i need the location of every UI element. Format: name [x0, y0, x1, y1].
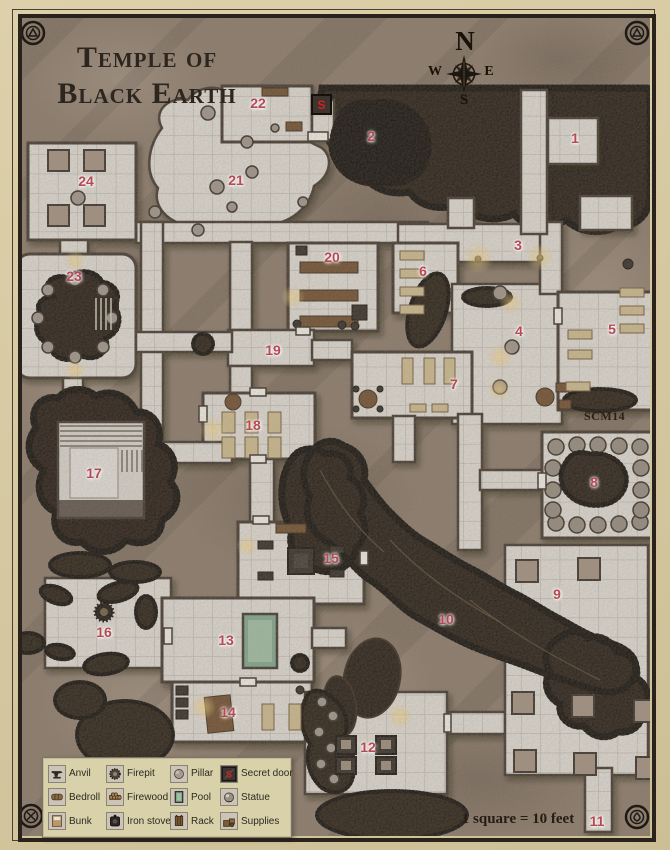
room-label-1: 1	[571, 130, 579, 146]
room-label-10: 10	[438, 611, 454, 627]
room-label-13: 13	[218, 632, 234, 648]
compass-west-label: W	[427, 64, 443, 80]
room-label-16: 16	[96, 624, 112, 640]
statue-icon	[220, 788, 238, 806]
legend-item-anvil: Anvil	[48, 765, 106, 783]
room-label-23: 23	[66, 268, 82, 284]
firewood-icon	[106, 788, 124, 806]
room-label-9: 9	[553, 586, 561, 602]
bunk-icon	[48, 812, 66, 830]
map-title: Temple of Black Earth	[36, 40, 258, 112]
room-label-4: 4	[515, 323, 523, 339]
room-label-12: 12	[360, 739, 376, 755]
pool-icon	[170, 788, 188, 806]
legend-item-secret-door: S Secret door	[220, 765, 286, 783]
supplies-icon	[220, 812, 238, 830]
legend-item-firewood: Firewood	[106, 788, 170, 806]
map-title-line2: Black Earth	[36, 76, 258, 112]
legend-item-rack: Rack	[170, 812, 220, 830]
pillar-icon	[170, 765, 188, 783]
map-code: SCM14	[584, 409, 625, 424]
room-label-7: 7	[450, 376, 458, 392]
legend-item-pool: Pool	[170, 788, 220, 806]
firepit-icon	[106, 765, 124, 783]
room-label-17: 17	[86, 465, 102, 481]
room-label-18: 18	[245, 417, 261, 433]
map-title-line1: Temple of	[36, 40, 258, 76]
grain-overlay	[16, 12, 654, 838]
legend-item-firepit: Firepit	[106, 765, 170, 783]
legend-item-statue: Statue	[220, 788, 286, 806]
room-label-15: 15	[323, 550, 339, 566]
legend-item-pillar: Pillar	[170, 765, 220, 783]
secret-door-icon-letter: S	[226, 769, 232, 779]
room-label-6: 6	[419, 263, 427, 279]
room-label-19: 19	[265, 342, 281, 358]
secret-door-marker: S	[311, 94, 332, 115]
bedroll-icon	[48, 788, 66, 806]
legend-item-iron-stove: Iron stove	[106, 812, 170, 830]
secret-door-icon: S	[220, 765, 238, 783]
map-legend: Anvil Bedroll Bunk Firepit Firewood Iron…	[42, 757, 292, 838]
room-label-11: 11	[590, 813, 605, 829]
legend-item-bedroll: Bedroll	[48, 788, 106, 806]
room-label-24: 24	[78, 173, 94, 189]
room-label-5: 5	[608, 321, 616, 337]
room-label-22: 22	[250, 95, 266, 111]
room-label-8: 8	[590, 474, 598, 490]
dungeon-map-canvas	[0, 0, 670, 850]
secret-door-letter: S	[317, 99, 325, 111]
compass-south-label: S	[457, 92, 471, 109]
rack-icon	[170, 812, 188, 830]
compass-north-label: N	[452, 26, 478, 57]
compass-east-label: E	[482, 64, 496, 80]
room-label-3: 3	[514, 237, 522, 253]
iron-stove-icon	[106, 812, 124, 830]
room-label-14: 14	[220, 704, 236, 720]
room-label-2: 2	[367, 128, 375, 144]
legend-item-supplies: Supplies	[220, 812, 286, 830]
map-scale-note: 1 square = 10 feet	[448, 811, 588, 828]
room-label-20: 20	[324, 249, 340, 265]
temple-map-page: { "map": { "title_line1": "Temple of", "…	[0, 0, 670, 850]
legend-item-bunk: Bunk	[48, 812, 106, 830]
anvil-icon	[48, 765, 66, 783]
room-label-21: 21	[228, 172, 244, 188]
